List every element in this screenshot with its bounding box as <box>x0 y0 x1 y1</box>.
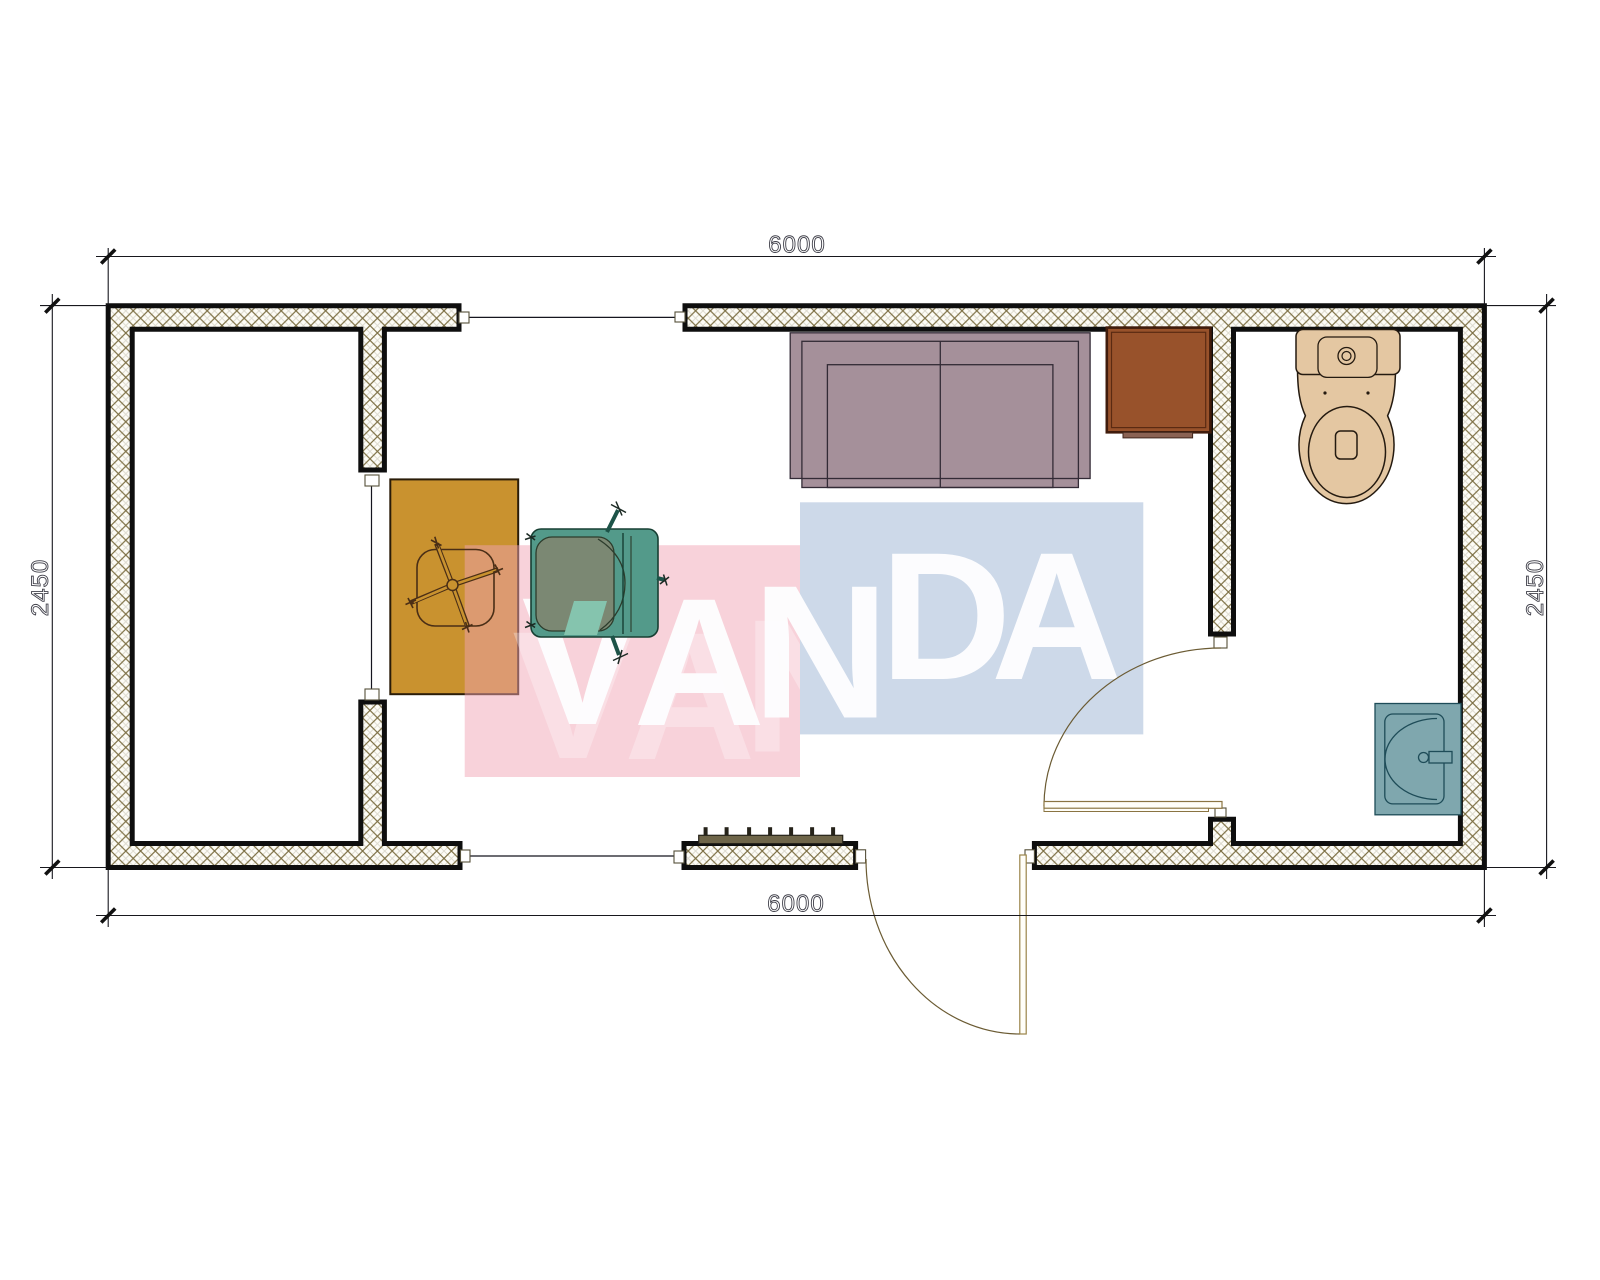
svg-text:N: N <box>752 547 889 759</box>
svg-text:6000: 6000 <box>768 232 825 259</box>
svg-text:2450: 2450 <box>27 559 54 616</box>
svg-text:2450: 2450 <box>1522 559 1549 616</box>
svg-text:6000: 6000 <box>767 891 824 918</box>
svg-text:A: A <box>991 514 1122 718</box>
